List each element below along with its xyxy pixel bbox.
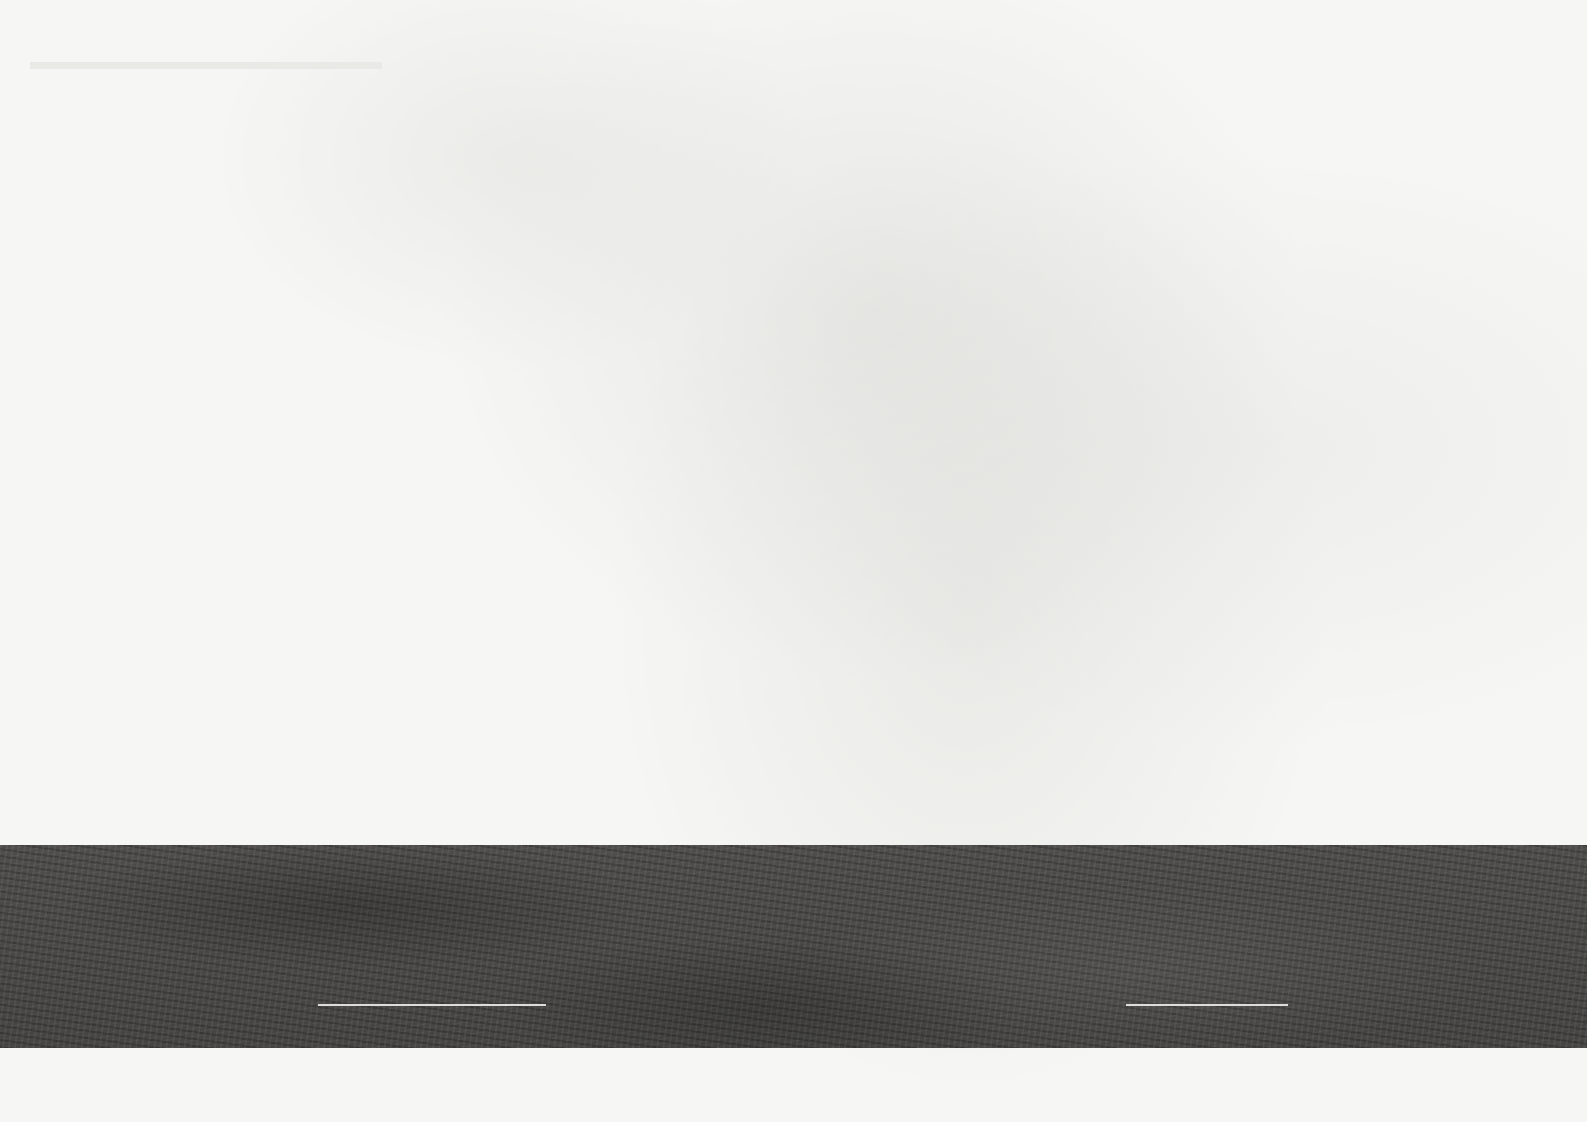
drawing-sheet bbox=[0, 0, 1587, 1122]
page-title bbox=[30, 14, 40, 48]
section-drawings-svg bbox=[0, 0, 1587, 1122]
section-title-b bbox=[1126, 1000, 1288, 1006]
section-title-a bbox=[318, 1000, 546, 1006]
